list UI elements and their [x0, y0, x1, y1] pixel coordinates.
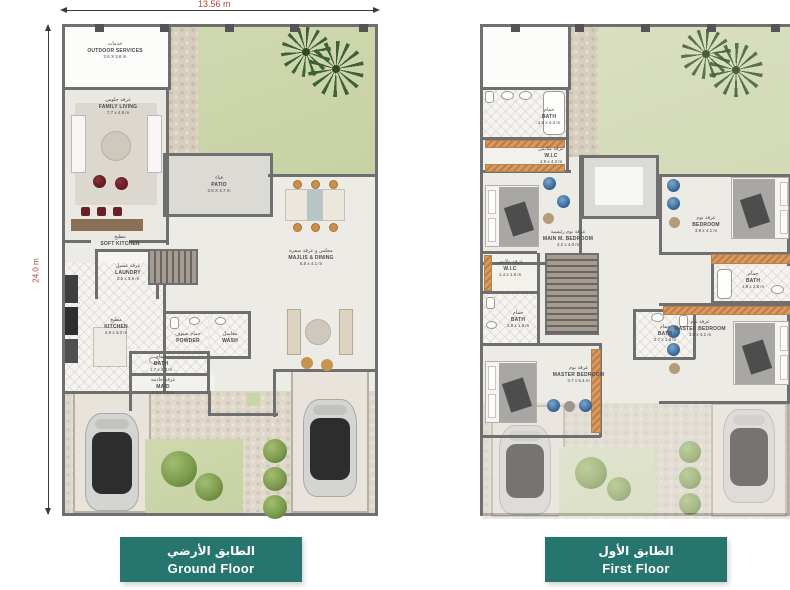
shrub: [679, 493, 701, 515]
sink: [189, 317, 200, 325]
majlis-sofa: [287, 309, 301, 355]
counter-stool: [113, 207, 122, 216]
wall: [208, 391, 211, 415]
room-label-wic-left: غرفة ملابس W.I.C 1.4 x 1.8 m: [483, 259, 537, 278]
wall: [579, 155, 582, 265]
top-dimension-line: [62, 10, 378, 11]
wall: [129, 373, 209, 376]
wall: [537, 253, 540, 345]
first-floor-tag-english: First Floor: [602, 561, 670, 576]
room-label-size: 5.8 x 4.1 m: [271, 261, 351, 267]
wall: [65, 87, 171, 90]
pouf: [321, 359, 333, 371]
first-floor-tag: الطابق الأول First Floor: [545, 537, 727, 582]
room-label-size: 2.8 x 1.8 m: [491, 323, 545, 329]
room-label-bedroom: غرفة نوم BEDROOM 3.9 x 4.1 m: [666, 215, 746, 234]
shrub: [263, 439, 287, 463]
staircase: [545, 253, 599, 335]
bed-pillow: [488, 366, 496, 390]
wall: [483, 87, 571, 90]
majlis-sofa: [339, 309, 353, 355]
wardrobe: [663, 306, 790, 315]
room-label-size: 2.7 x 1.8 m: [635, 337, 695, 343]
wall: [168, 27, 171, 90]
first-floor-tag-arabic: الطابق الأول: [598, 544, 673, 558]
dining-chair: [293, 180, 302, 189]
room-label-size: 3.9 x 4.1 m: [666, 228, 746, 234]
dimension-arrow-down: [45, 508, 51, 515]
room-label-wash: مغاسل WASH: [195, 331, 265, 344]
pillar: [641, 24, 650, 32]
wardrobe: [485, 164, 565, 172]
bed: [733, 321, 789, 385]
sink: [215, 317, 226, 325]
dining-chair: [311, 180, 320, 189]
ground-floor-plan: خدمات OUTDOOR SERVICES 2.6 X 3.6 m غرفة …: [62, 24, 378, 516]
dining-chair: [329, 223, 338, 232]
room-label-maid: غرفة خادمة MAID 2.2 x 2.5 m: [128, 377, 198, 396]
sofa: [147, 115, 162, 173]
wall: [483, 251, 537, 254]
pouf: [547, 399, 560, 412]
pillar: [225, 24, 234, 32]
bed-pillow: [488, 190, 496, 214]
ground-floor-tag-arabic: الطابق الأرضي: [167, 544, 255, 558]
room-label-bath-right: حمام BATH 1.9 x 2.8 m: [723, 271, 783, 290]
dining-chair: [293, 223, 302, 232]
dimension-arrow-left: [60, 7, 67, 13]
pillar: [707, 24, 716, 32]
room-label-outdoor-services: خدمات OUTDOOR SERVICES 2.6 X 3.6 m: [75, 41, 155, 60]
pillar: [160, 24, 169, 32]
room-label-size: 2.6 X 3.6 m: [75, 54, 155, 60]
pillar: [511, 24, 520, 32]
room-label-bath-middle: حمام BATH 2.7 x 1.8 m: [635, 324, 695, 343]
wall: [163, 311, 251, 314]
pillar: [95, 24, 104, 32]
armchair: [93, 175, 106, 188]
room-label-size: 1.4 x 1.8 m: [483, 272, 537, 278]
room-label-laundry: غرفة غسيل LAUNDRY 2.5 x 3.8 m: [88, 263, 168, 282]
bed-pillow: [780, 210, 788, 234]
pouf: [667, 197, 680, 210]
room-label-size: 4.2 x 4.0 m: [523, 242, 613, 248]
ground-floor-tag: الطابق الأرضي Ground Floor: [120, 537, 302, 582]
shrub: [263, 495, 287, 519]
room-label-wic-top: غرفة ملابس W.I.C 1.9 x 4.2 m: [511, 146, 591, 165]
sink: [519, 91, 532, 100]
pouf: [667, 343, 680, 356]
pillar: [575, 24, 584, 32]
pouf: [564, 401, 575, 412]
room-label-bath-top: حمام BATH 1.6 x 4.2 m: [509, 107, 589, 126]
room-label-bath-left: حمام BATH 2.8 x 1.8 m: [491, 310, 545, 329]
wall: [166, 87, 169, 245]
skylight: [595, 167, 643, 205]
wall: [208, 413, 278, 416]
shrub: [679, 467, 701, 489]
counter-appliance: [65, 339, 78, 363]
wall: [659, 174, 662, 252]
pouf: [301, 357, 313, 369]
dining-chair: [311, 223, 320, 232]
toilet: [485, 91, 494, 103]
room-label-size: 2.9 X 4.7 m: [179, 188, 259, 194]
pouf: [579, 399, 592, 412]
bed-pillow: [780, 355, 788, 380]
pouf: [669, 363, 680, 374]
pillar: [359, 24, 368, 32]
room-label-size: 7.7 x 4.8 m: [78, 110, 158, 116]
top-dimension-label: 13.56 m: [198, 0, 231, 9]
wall: [483, 435, 601, 438]
counter-stool: [97, 207, 106, 216]
bush: [575, 457, 607, 489]
pouf: [667, 179, 680, 192]
bed: [485, 361, 537, 423]
bush: [195, 473, 223, 501]
dining-chair: [329, 180, 338, 189]
round-coffee-table: [101, 131, 131, 161]
pouf: [543, 177, 556, 190]
open-terrace: [483, 27, 568, 87]
wall: [659, 401, 790, 404]
side-dimension-label: 24.0 m: [32, 258, 41, 282]
wall: [483, 291, 537, 294]
pouf: [543, 213, 554, 224]
room-label-size: 2.2 x 2.5 m: [128, 390, 198, 396]
first-floor-plan: حمام BATH 1.6 x 4.2 m غرفة ملابس W.I.C 1…: [480, 24, 790, 516]
room-label-main-bedroom: غرفة نوم رئيسية MAIN M. BEDROOM 4.2 x 4.…: [523, 229, 613, 248]
floor-plan-sheet: 13.56 m 24.0 m: [0, 0, 790, 590]
sink: [651, 313, 664, 322]
pouf: [557, 195, 570, 208]
counter-stool: [81, 207, 90, 216]
room-label-kitchen: مطبخ KITCHEN 4.9 x 3.0 m: [76, 317, 156, 336]
bed-pillow: [488, 394, 496, 418]
pillar: [771, 24, 780, 32]
bed-pillow: [780, 326, 788, 351]
room-label-size: 1.6 x 4.2 m: [509, 120, 589, 126]
wall: [568, 27, 571, 90]
soft-kitchen-counter: [71, 219, 143, 231]
bed-pillow: [488, 218, 496, 242]
wardrobe: [591, 349, 601, 433]
shrub: [679, 441, 701, 463]
shrub: [263, 467, 287, 491]
wardrobe: [711, 254, 790, 264]
wall: [207, 351, 210, 393]
sofa: [71, 115, 86, 173]
room-label-family-living: غرفة جلوس FAMILY LIVING 7.7 x 4.8 m: [78, 97, 158, 116]
room-label-en: WASH: [195, 338, 265, 345]
car: [499, 425, 551, 515]
room-label-bath: حمام BATH 1.7 x 2.3 m: [126, 354, 196, 373]
room-label-master-bedroom-left: غرفة نوم MASTER BEDROOM 3.7 x 5.4 m: [541, 365, 616, 384]
room-label-size: 1.9 x 4.2 m: [511, 159, 591, 165]
wall: [483, 343, 601, 346]
room-label-soft-kitchen: مطبخ SOFT KITCHEN: [80, 234, 160, 247]
dimension-arrow-right: [373, 7, 380, 13]
bush: [161, 451, 197, 487]
room-label-patio: فناء PATIO 2.9 X 4.7 m: [179, 175, 259, 194]
room-label-size: 2.5 x 3.8 m: [88, 276, 168, 282]
room-label-en: SOFT KITCHEN: [80, 241, 160, 248]
room-label-size: 3.7 x 5.4 m: [541, 378, 616, 384]
wall: [711, 264, 714, 302]
ground-floor-tag-english: Ground Floor: [168, 561, 255, 576]
pebble-path: [568, 27, 598, 157]
bed-pillow: [780, 182, 788, 206]
planter: [247, 393, 260, 406]
side-dimension-line: [48, 26, 49, 514]
dimension-arrow-up: [45, 24, 51, 31]
wall: [268, 174, 375, 177]
backyard-lawn: [559, 447, 655, 517]
wall: [273, 369, 276, 417]
toilet: [170, 317, 179, 329]
bush: [607, 477, 631, 501]
table-runner: [307, 189, 323, 221]
car: [303, 399, 357, 497]
room-label-size: 1.9 x 2.8 m: [723, 284, 783, 290]
room-label-size: 4.9 x 3.0 m: [76, 330, 156, 336]
car: [723, 409, 775, 503]
sink: [501, 91, 514, 100]
toilet: [486, 297, 495, 309]
round-table: [305, 319, 331, 345]
wall: [633, 357, 695, 360]
car: [85, 413, 139, 511]
room-label-size: 1.7 x 2.3 m: [126, 367, 196, 373]
armchair: [115, 177, 128, 190]
room-label-majlis-dining: مجلس و غرفة سفرة MAJLIS & DINING 5.8 x 4…: [271, 248, 351, 267]
pebble-path: [168, 27, 198, 157]
pillar: [290, 24, 299, 32]
refrigerator: [65, 275, 78, 303]
